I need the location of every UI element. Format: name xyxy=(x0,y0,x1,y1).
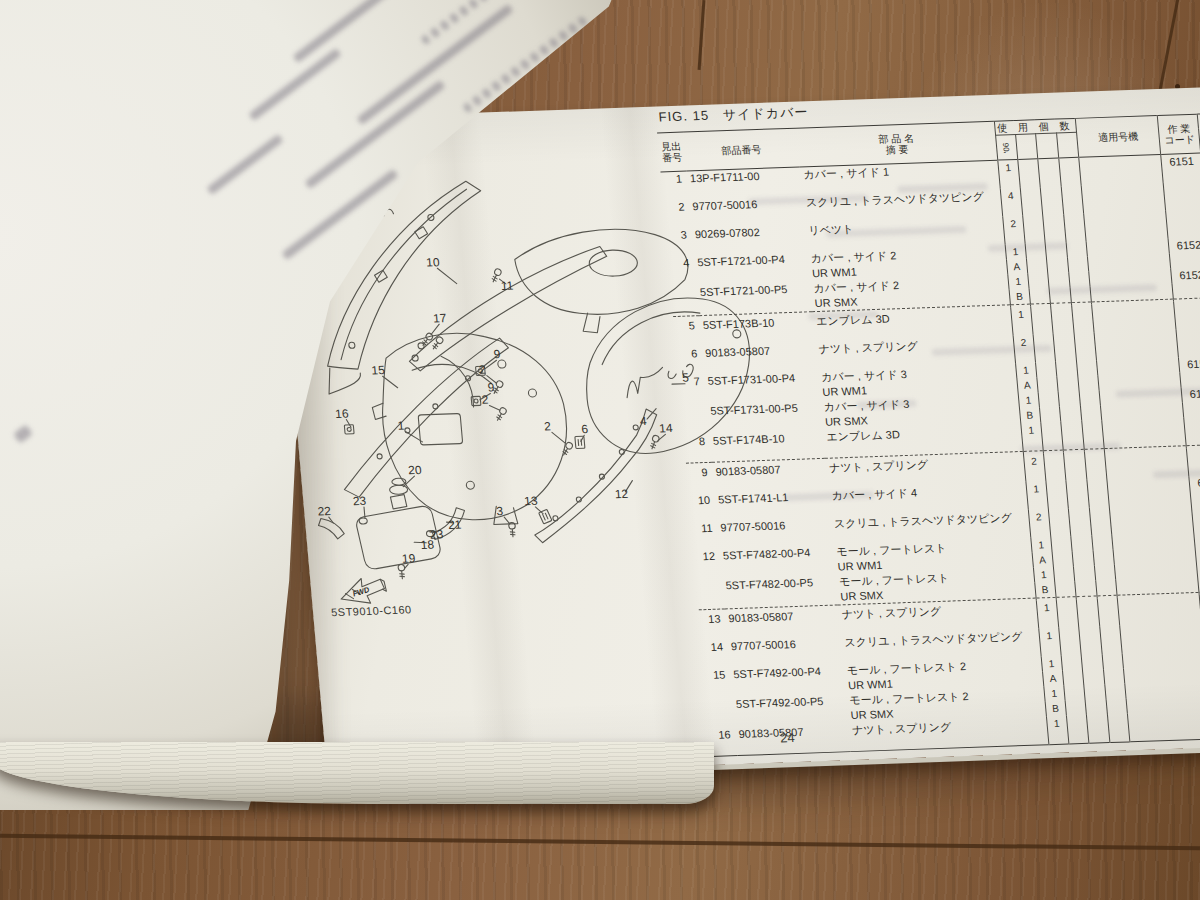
callout-number: 9 xyxy=(493,347,501,361)
callout-number: 21 xyxy=(447,518,462,532)
part-clip-6 xyxy=(575,436,585,448)
photo-of-parts-catalog: { "window": { "page_number": "24" }, "fi… xyxy=(0,0,1200,900)
callout-number: 6 xyxy=(581,422,589,436)
header-part-name: 部 品 名摘 要 xyxy=(796,121,997,167)
page-number: 24 xyxy=(780,730,796,745)
callout-number: 11 xyxy=(500,279,514,293)
parts-table-body: 113P-F1711-00カバー , サイド 1161510.3297707-5… xyxy=(660,152,1200,757)
part-screw-19 xyxy=(398,564,406,578)
callout-number: 20 xyxy=(408,463,423,477)
callout-number: 23 xyxy=(352,494,367,508)
callout-number: 2 xyxy=(543,419,551,433)
callout-number: 13 xyxy=(524,494,539,508)
part-nut-16 xyxy=(344,425,354,434)
header-job-code: 作 業コード xyxy=(1158,114,1200,154)
svg-text:FWD: FWD xyxy=(351,585,371,598)
callout-number: 15 xyxy=(371,363,386,377)
callout-number: 14 xyxy=(659,421,674,435)
callout-number: 4 xyxy=(639,414,647,428)
bleed-through-mark xyxy=(13,424,33,443)
header-part-number: 部品番号 xyxy=(683,128,800,171)
header-qty-model: '06 xyxy=(995,134,1017,160)
callout-number: 3 xyxy=(496,504,504,518)
callout-number: 18 xyxy=(420,538,435,552)
part-screw-14 xyxy=(649,435,660,451)
catalog-right-page: FIG. 15 サイドカバー xyxy=(270,86,1200,778)
part-screw-3 xyxy=(509,522,517,536)
header-applicable: 適用号機 xyxy=(1075,116,1161,158)
callout-number: 19 xyxy=(401,551,416,565)
parts-table: 見出番号 部品番号 部 品 名摘 要 使 用 個 数 適用号機 作 業コード 整… xyxy=(657,112,1200,757)
callout-number: 1 xyxy=(397,419,405,433)
header-ref-no: 見出番号 xyxy=(657,132,686,172)
callout-number: 12 xyxy=(614,487,629,501)
callout-number: 17 xyxy=(432,311,447,325)
bleed-through-text xyxy=(206,134,283,195)
callout-number: 9 xyxy=(487,380,495,394)
callout-number: 10 xyxy=(426,255,441,269)
